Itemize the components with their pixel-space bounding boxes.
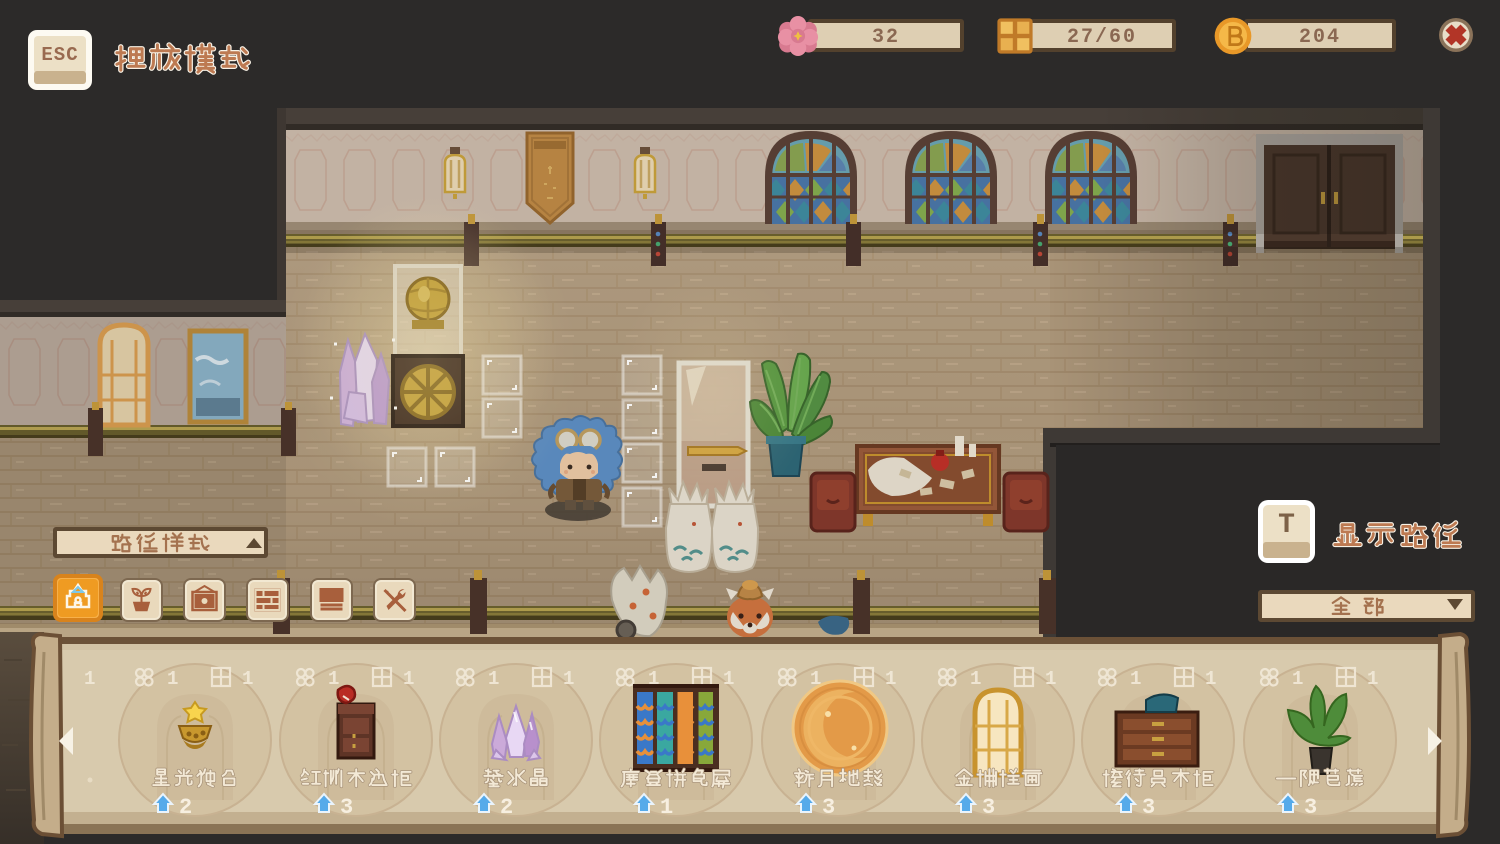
svg-text:1: 1	[563, 668, 574, 690]
svg-text:2: 2	[500, 795, 513, 820]
svg-text:1: 1	[1367, 668, 1378, 690]
svg-text:1: 1	[167, 668, 178, 690]
svg-text:3: 3	[340, 795, 353, 820]
svg-text:1: 1	[242, 668, 253, 690]
svg-text:1: 1	[1292, 668, 1303, 690]
svg-text:3: 3	[1142, 795, 1155, 820]
svg-text:3: 3	[822, 795, 835, 820]
svg-text:1: 1	[660, 795, 673, 820]
svg-text:1: 1	[1130, 668, 1141, 690]
svg-text:1: 1	[970, 668, 981, 690]
svg-text:1: 1	[885, 668, 896, 690]
svg-text:1: 1	[84, 668, 95, 690]
svg-text:2: 2	[179, 795, 192, 820]
svg-text:1: 1	[723, 668, 734, 690]
svg-text:1: 1	[488, 668, 499, 690]
svg-text:3: 3	[982, 795, 995, 820]
svg-text:3: 3	[1304, 795, 1317, 820]
svg-text:1: 1	[1045, 668, 1056, 690]
svg-text:1: 1	[403, 668, 414, 690]
svg-text:1: 1	[328, 668, 339, 690]
svg-text:1: 1	[1205, 668, 1216, 690]
